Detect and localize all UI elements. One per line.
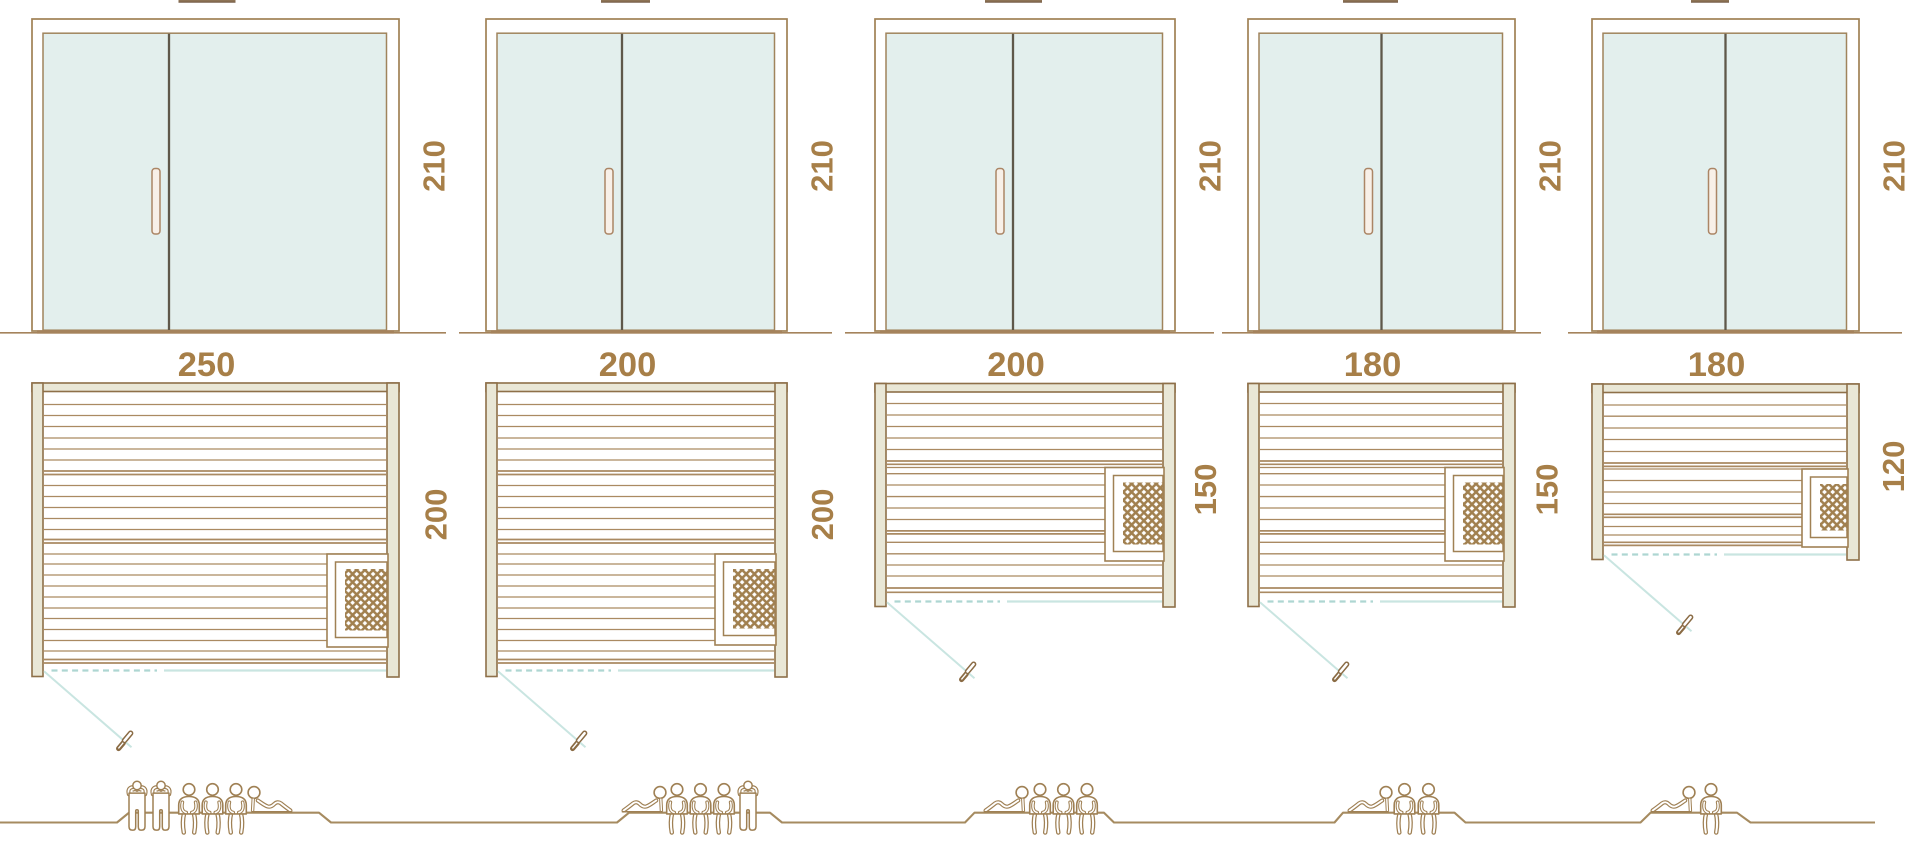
svg-text:200: 200: [599, 346, 657, 384]
svg-text:200: 200: [418, 489, 453, 541]
svg-text:210: 210: [1532, 140, 1567, 192]
svg-text:200: 200: [987, 346, 1045, 384]
svg-text:120: 120: [1876, 441, 1911, 493]
svg-text:210: 210: [416, 140, 451, 192]
svg-text:250: 250: [178, 346, 236, 384]
svg-text:210: 210: [804, 140, 839, 192]
svg-text:200: 200: [805, 489, 840, 541]
svg-text:180: 180: [1344, 346, 1402, 384]
svg-text:210: 210: [1876, 140, 1911, 192]
svg-text:210: 210: [1192, 140, 1227, 192]
svg-text:180: 180: [1688, 346, 1746, 384]
svg-text:150: 150: [1529, 464, 1564, 516]
svg-text:150: 150: [1188, 464, 1223, 516]
